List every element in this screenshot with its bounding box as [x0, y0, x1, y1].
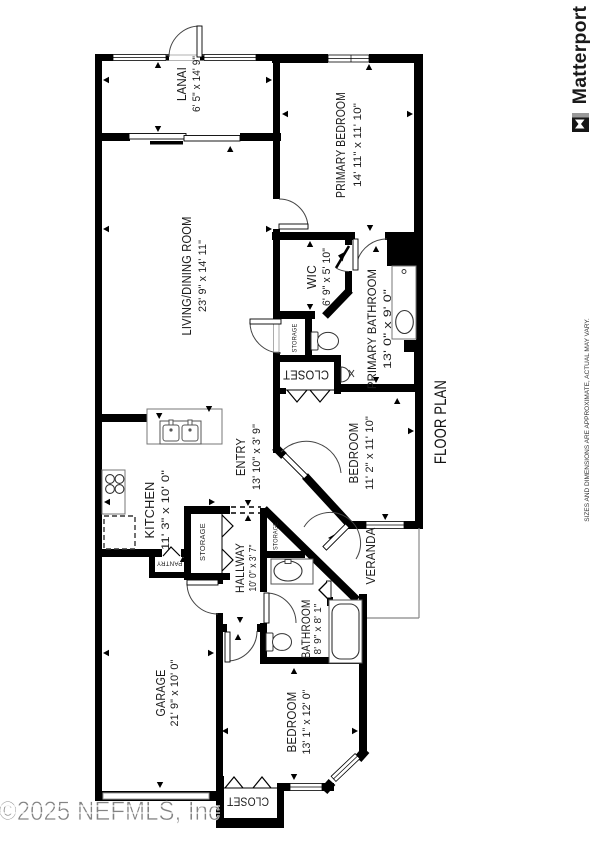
svg-text:VERANDA: VERANDA [364, 527, 378, 584]
svg-text:HALLWAY: HALLWAY [233, 543, 247, 593]
svg-text:KITCHEN: KITCHEN [143, 482, 157, 539]
svg-text:ENTRY: ENTRY [234, 438, 248, 476]
svg-text:11' 2" x 11' 10": 11' 2" x 11' 10" [364, 416, 376, 490]
svg-text:BEDROOM: BEDROOM [347, 423, 361, 484]
svg-text:LANAI: LANAI [175, 67, 189, 101]
svg-text:10' 0" x 3' 7": 10' 0" x 3' 7" [247, 544, 259, 591]
svg-text:13' 1" x 12' 0": 13' 1" x 12' 0" [301, 690, 313, 755]
svg-text:SIZES AND DIMENSIONS ARE APPRO: SIZES AND DIMENSIONS ARE APPROXIMATE, AC… [584, 318, 591, 522]
svg-text:LIVING/DINING ROOM: LIVING/DINING ROOM [180, 217, 194, 336]
svg-text:6' 5" x 14' 9": 6' 5" x 14' 9" [191, 56, 203, 112]
svg-text:PANTRY: PANTRY [157, 560, 183, 567]
svg-text:PRIMARY BATHROOM: PRIMARY BATHROOM [365, 269, 379, 389]
svg-text:STORAGE: STORAGE [273, 522, 280, 550]
svg-text:6' 9" x 5' 10": 6' 9" x 5' 10" [321, 248, 333, 306]
svg-text:STORAGE: STORAGE [292, 323, 299, 352]
svg-text:13' 0" x 9' 0": 13' 0" x 9' 0" [382, 289, 394, 369]
svg-text:PRIMARY BEDROOM: PRIMARY BEDROOM [334, 92, 348, 198]
svg-text:11' 3" x 10' 0": 11' 3" x 10' 0" [160, 470, 172, 550]
svg-text:WIC: WIC [305, 265, 319, 289]
svg-text:14' 11" x 11' 10": 14' 11" x 11' 10" [352, 103, 364, 187]
svg-text:13' 10" x 3' 9": 13' 10" x 3' 9" [251, 424, 263, 490]
svg-text:BEDROOM: BEDROOM [285, 692, 299, 753]
svg-text:©2025 NEFMLS, Inc: ©2025 NEFMLS, Inc [0, 796, 220, 826]
svg-text:23' 9" x 14' 11": 23' 9" x 14' 11" [197, 240, 209, 312]
svg-text:FLOOR PLAN: FLOOR PLAN [431, 380, 450, 464]
svg-text:CLOSET: CLOSET [227, 795, 269, 809]
svg-text:CLOSET: CLOSET [283, 368, 329, 383]
svg-text:21' 9" x 10' 0": 21' 9" x 10' 0" [169, 660, 181, 727]
svg-text:STORAGE: STORAGE [200, 523, 207, 561]
svg-text:8' 9" x 8' 1": 8' 9" x 8' 1" [313, 603, 324, 654]
svg-text:Matterport: Matterport [569, 5, 591, 104]
svg-text:BATHROOM: BATHROOM [301, 600, 313, 659]
svg-text:GARAGE: GARAGE [154, 670, 168, 717]
